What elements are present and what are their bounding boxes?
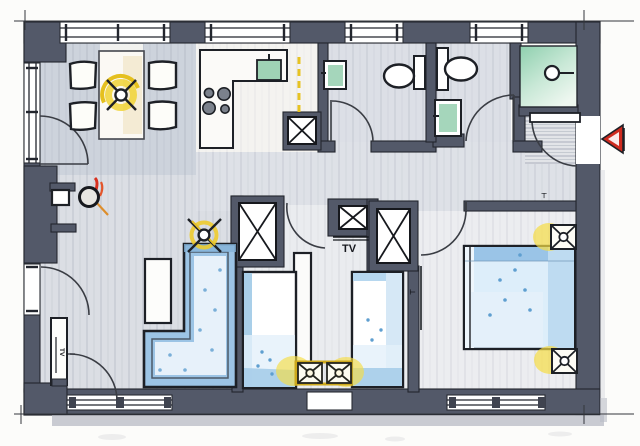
svg-text:TV: TV bbox=[58, 348, 65, 357]
svg-text:⊤: ⊤ bbox=[541, 192, 547, 200]
svg-text:⊤: ⊤ bbox=[409, 289, 417, 295]
svg-text:TV: TV bbox=[342, 243, 357, 255]
